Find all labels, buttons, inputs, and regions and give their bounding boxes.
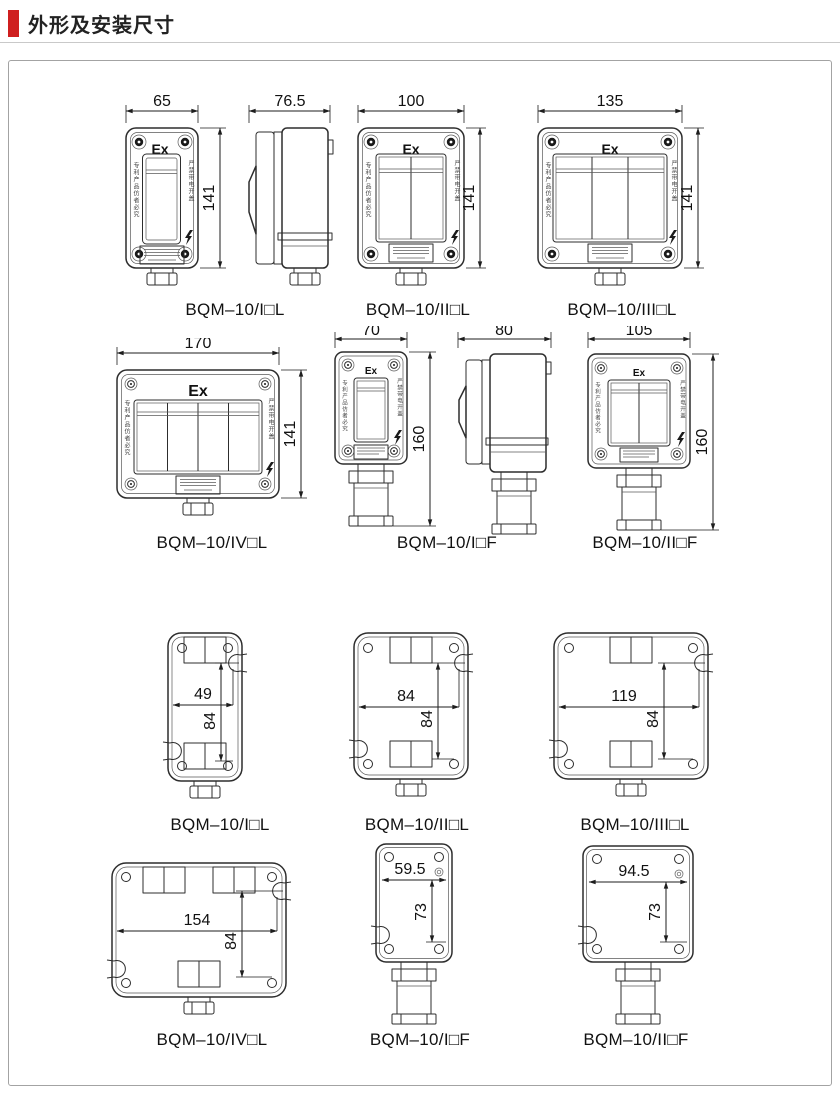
name-plate [389,244,433,262]
dim-width-value: 84 [397,688,415,705]
dimension-width: 65 [126,93,198,123]
figure-side-view-L: 76.5 [240,92,340,297]
dimension-width: 84 [359,669,459,707]
dimension-width: 119 [559,669,699,707]
rocker-profile [459,386,466,438]
model-label-back1: BQM–10/I□L [170,815,269,835]
name-plate [354,445,388,459]
figure-front-1gang-F: 70 Ex 专利产品仿者必究 严禁带电开盖 160 [323,326,458,548]
side-text-right: 严禁带电开盖 [679,380,686,419]
dimension-height: 141 [200,128,226,268]
dimension-height: 84 [419,663,465,759]
dimension-height: 84 [202,663,239,761]
dimension-width: 80 [458,326,551,348]
model-label-backF1: BQM–10/I□F [370,1030,470,1050]
ex-mark: Ex [188,383,208,400]
rocker-switch [608,380,670,446]
dim-height-value: 141 [201,185,218,212]
side-text-right: 严禁带电开盖 [267,398,274,440]
dim-width-value: 65 [153,93,171,110]
header-divider [0,42,840,43]
keyhole-slot [578,926,596,944]
lightning-icon [669,230,677,245]
side-text-left: 专利产品仿者必究 [341,379,348,433]
terminal-block [610,637,652,663]
figure-front-3gang-L: 135 Ex 专利产品仿者必究 严禁带电开盖 141 [525,92,735,297]
figure-front-4gang-L: 170 Ex 专利产品仿者必究 严禁带电开盖 141 [100,338,335,550]
lightning-icon [451,230,459,245]
figure-side-view-F: 80 [448,326,563,548]
dimension-width: 170 [117,338,279,365]
dimension-height: 73 [647,882,687,942]
model-label-front3: BQM–10/III□L [567,300,676,320]
terminal-block [390,741,432,767]
enclosure-body: Ex 专利产品仿者必究 严禁带电开盖 [335,352,407,526]
figure-back-1gang-L: 49 84 [153,625,283,815]
dim-width-value: 170 [185,338,212,352]
model-label-front2: BQM–10/II□L [366,300,470,320]
model-label-backF2: BQM–10/II□F [583,1030,688,1050]
side-text-right: 严禁带电开盖 [396,378,403,417]
model-label-back4: BQM–10/IV□L [157,1030,268,1050]
model-label-back2: BQM–10/II□L [365,815,469,835]
terminal-block [390,637,432,663]
rocker-switch [143,154,181,244]
dimension-width: 70 [335,326,407,348]
side-text-left: 专利产品仿者必究 [364,161,371,218]
enclosure-back [107,863,291,1014]
side-text-left: 专利产品仿者必究 [132,161,139,218]
page-title: 外形及安装尺寸 [28,9,175,38]
dim-width-value: 154 [184,912,211,929]
cable-gland [290,268,320,285]
dimension-width: 100 [358,93,464,123]
dimension-width: 76.5 [249,93,330,123]
ex-mark: Ex [365,366,378,377]
lightning-icon [394,430,402,445]
cable-gland [147,268,177,285]
side-text-right: 严禁带电开盖 [187,160,194,202]
model-label-front1: BQM–10/I□L [185,300,284,320]
figure-front-1gang-L: 65 Ex 专利产品仿者必究 严禁带电开盖 141 [103,92,238,297]
ex-mark: Ex [601,141,618,157]
dim-height-value: 84 [645,710,662,728]
dimension-width: 49 [173,669,233,705]
cable-gland [616,779,646,796]
figure-back-2gang-F: 94.5 73 [568,840,718,1036]
dim-width-value: 49 [194,686,212,703]
mounting-flange [278,233,332,240]
page-header: 外形及安装尺寸 [8,9,175,38]
dim-width-value: 119 [611,688,637,705]
figure-back-1gang-F: 59.5 73 [358,838,483,1036]
terminal-block [213,867,255,893]
dim-height-value: 141 [282,421,299,448]
terminal-block [184,743,226,769]
figure-front-2gang-L: 100 Ex 专利产品仿者必究 严禁带电开盖 141 [340,92,515,297]
dim-height-value: 160 [694,429,711,456]
dim-height-value: 73 [413,903,430,921]
cable-gland [396,779,426,796]
enclosure-back [349,633,473,796]
dim-height-value: 84 [223,932,240,950]
socket-plug [616,962,660,1024]
dimension-height: 141 [281,370,307,498]
dim-height-value: 73 [647,903,664,921]
figure-back-4gang-L: 154 84 [100,855,330,1035]
dim-width-value: 80 [495,326,513,339]
side-text-right: 严禁带电开盖 [453,160,460,202]
dimension-width: 59.5 [382,861,446,880]
dim-width-value: 100 [398,93,425,110]
cable-gland [184,997,214,1014]
dimension-width: 135 [538,93,682,123]
keyhole-slot [371,926,389,944]
mounting-hole [435,868,443,876]
dim-width-value: 135 [597,93,624,110]
ex-mark: Ex [151,141,168,157]
rocker-switch [376,154,446,242]
cable-gland [183,498,213,515]
dim-width-value: 70 [362,326,380,339]
enclosure-body: Ex 专利产品仿者必究 严禁带电开盖 [588,354,690,530]
dim-height-value: 141 [679,185,696,212]
dimension-height: 73 [413,880,446,942]
dim-height-value: 160 [411,426,428,453]
figure-back-2gang-L: 84 84 [342,625,507,815]
socket-plug [617,468,661,530]
dim-width-value: 76.5 [274,93,305,110]
name-plate [588,244,632,262]
side-text-right: 严禁带电开盖 [670,160,677,202]
dim-height-value: 141 [461,185,478,212]
terminal-block [184,637,226,663]
cable-gland [396,268,426,285]
lightning-icon [266,462,274,477]
rocker-switch [553,154,667,242]
enclosure-body: Ex 专利产品仿者必究 严禁带电开盖 [126,128,198,285]
socket-plug [492,472,536,534]
mounting-flange [486,438,548,445]
name-plate [620,448,658,462]
side-text-left: 专利产品仿者必究 [123,399,130,456]
rocker-switch [134,400,262,474]
enclosure-side-profile [249,128,333,285]
model-label-front4: BQM–10/IV□L [157,533,268,553]
side-text-left: 专利产品仿者必究 [544,161,551,218]
cable-gland [190,781,220,798]
model-label-frontF1: BQM–10/I□F [397,533,497,553]
name-plate [140,246,184,264]
name-plate [176,476,220,494]
dim-width-value: 94.5 [618,863,649,880]
dimension-height: 84 [645,663,705,759]
rocker-profile [249,166,256,234]
figure-front-2gang-F: 105 Ex 专利产品仿者必究 严禁带电开盖 160 [573,326,728,548]
terminal-block [143,867,185,893]
dim-height-value: 84 [202,712,219,730]
title-accent-bar [8,10,19,37]
enclosure-side-profile [459,354,551,534]
cable-gland [595,268,625,285]
mounting-hole [675,870,683,878]
terminal-block [178,961,220,987]
lightning-icon [677,432,685,447]
dimension-width: 94.5 [589,863,687,882]
dim-width-value: 105 [626,326,653,339]
rocker-switch [354,378,388,442]
lightning-icon [185,230,193,245]
figure-back-3gang-L: 119 84 [542,625,742,815]
socket-plug [349,464,393,526]
enclosure-body: Ex 专利产品仿者必究 严禁带电开盖 [358,128,464,285]
dim-height-value: 84 [419,710,436,728]
model-label-frontF2: BQM–10/II□F [592,533,697,553]
enclosure-body: Ex 专利产品仿者必究 严禁带电开盖 [538,128,682,285]
ex-mark: Ex [402,141,419,157]
dimension-width: 154 [117,897,277,931]
socket-plug [392,962,436,1024]
model-label-back3: BQM–10/III□L [580,815,689,835]
enclosure-body: Ex 专利产品仿者必究 严禁带电开盖 [117,370,279,515]
dim-width-value: 59.5 [394,861,425,878]
enclosure-back [549,633,713,796]
dimension-height: 84 [223,891,283,977]
dimension-width: 105 [588,326,690,348]
side-text-left: 专利产品仿者必究 [594,381,601,435]
terminal-block [610,741,652,767]
ex-mark: Ex [633,368,646,379]
